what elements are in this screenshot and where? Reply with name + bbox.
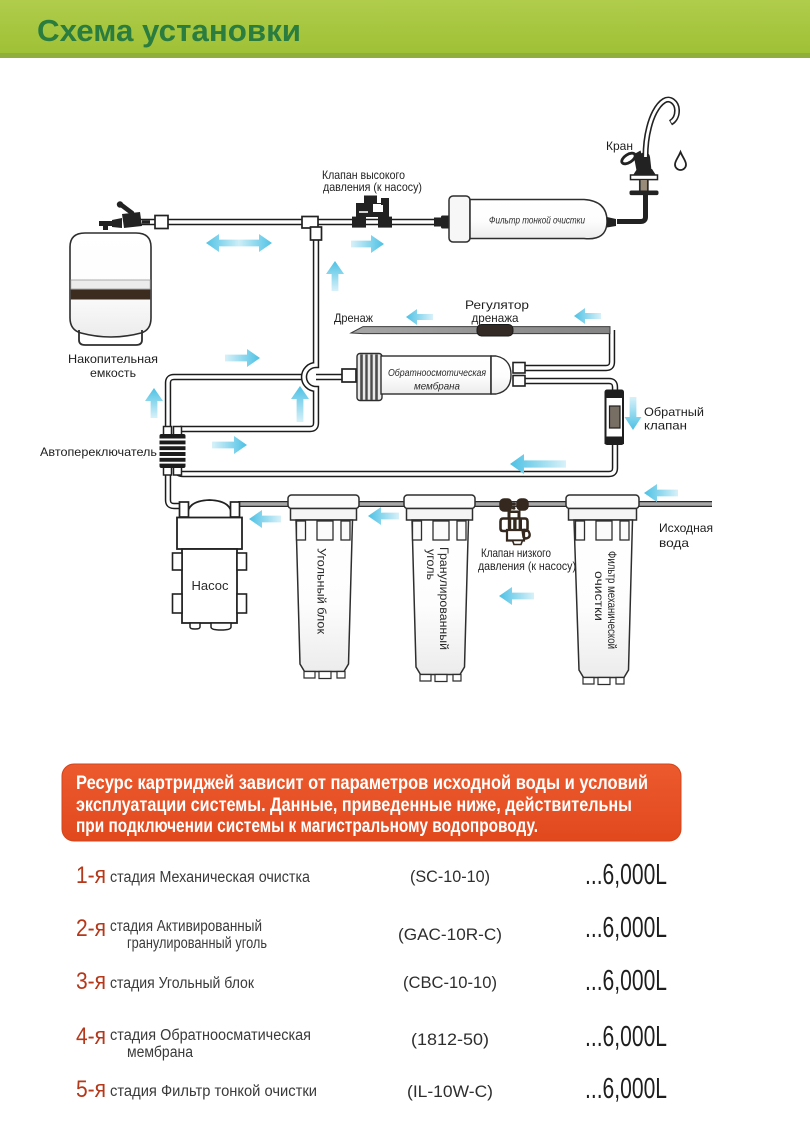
svg-text:клапан: клапан: [644, 419, 687, 433]
svg-text:стадия Активированный: стадия Активированный: [110, 918, 262, 935]
svg-text:...6,000L: ...6,000L: [585, 1073, 667, 1105]
svg-text:1-я: 1-я: [76, 862, 106, 889]
svg-text:гранулированный уголь: гранулированный уголь: [127, 935, 267, 952]
svg-text:Схема установки: Схема установки: [37, 13, 301, 48]
svg-text:Обратноосмотическая: Обратноосмотическая: [388, 367, 486, 379]
svg-text:(1812-50): (1812-50): [411, 1030, 489, 1049]
svg-text:Ресурс картриджей зависит от п: Ресурс картриджей зависит от параметров …: [76, 773, 648, 794]
svg-text:(IL-10W-C): (IL-10W-C): [407, 1082, 493, 1101]
svg-text:стадия Фильтр тонкой очистки: стадия Фильтр тонкой очистки: [110, 1083, 317, 1100]
svg-text:мембрана: мембрана: [127, 1044, 193, 1061]
svg-text:очистки: очистки: [592, 571, 604, 621]
svg-text:стадия Механическая очистка: стадия Механическая очистка: [110, 869, 310, 886]
svg-text:4-я: 4-я: [76, 1023, 106, 1050]
svg-text:мембрана: мембрана: [414, 381, 460, 393]
svg-text:...6,000L: ...6,000L: [585, 965, 667, 997]
svg-text:5-я: 5-я: [76, 1076, 106, 1103]
svg-text:емкость: емкость: [90, 366, 136, 380]
svg-text:Регулятор: Регулятор: [465, 298, 529, 312]
svg-text:Исходная: Исходная: [659, 521, 713, 535]
svg-text:эксплуатации системы. Данные,: эксплуатации системы. Данные, приведенны…: [76, 795, 632, 816]
svg-text:при подключении системы к маги: при подключении системы к магистральному…: [76, 816, 538, 837]
svg-text:Автопереключатель: Автопереключатель: [40, 445, 157, 459]
svg-text:Фильтр тонкой очистки: Фильтр тонкой очистки: [489, 215, 585, 227]
svg-text:Кран: Кран: [606, 139, 633, 153]
svg-text:дренажа: дренажа: [472, 311, 519, 325]
svg-text:уголь: уголь: [424, 549, 436, 580]
svg-text:3-я: 3-я: [76, 968, 106, 995]
svg-text:(CBC-10-10): (CBC-10-10): [403, 973, 497, 992]
svg-text:Накопительная: Накопительная: [68, 352, 158, 366]
svg-text:Насос: Насос: [192, 579, 229, 593]
svg-text:Обратный: Обратный: [644, 405, 704, 419]
svg-text:2-я: 2-я: [76, 915, 106, 942]
svg-text:давления (к насосу): давления (к насосу): [323, 180, 422, 194]
svg-text:Клапан низкого: Клапан низкого: [481, 546, 551, 560]
svg-text:давления (к насосу): давления (к насосу): [478, 559, 576, 573]
svg-text:Дренаж: Дренаж: [334, 311, 373, 325]
svg-text:стадия Обратноосматическая: стадия Обратноосматическая: [110, 1027, 311, 1044]
svg-text:Гранулированный: Гранулированный: [437, 547, 449, 650]
svg-text:вода: вода: [659, 536, 689, 550]
svg-text:Угольный блок: Угольный блок: [315, 548, 329, 635]
svg-text:стадия Угольный блок: стадия Угольный блок: [110, 975, 254, 992]
svg-text:(SC-10-10): (SC-10-10): [410, 867, 490, 886]
svg-text:(GAC-10R-C): (GAC-10R-C): [398, 925, 502, 944]
svg-text:...6,000L: ...6,000L: [585, 1021, 667, 1053]
svg-text:...6,000L: ...6,000L: [585, 912, 667, 944]
svg-text:...6,000L: ...6,000L: [585, 859, 667, 891]
svg-text:Фильтр механической: Фильтр механической: [605, 551, 617, 649]
